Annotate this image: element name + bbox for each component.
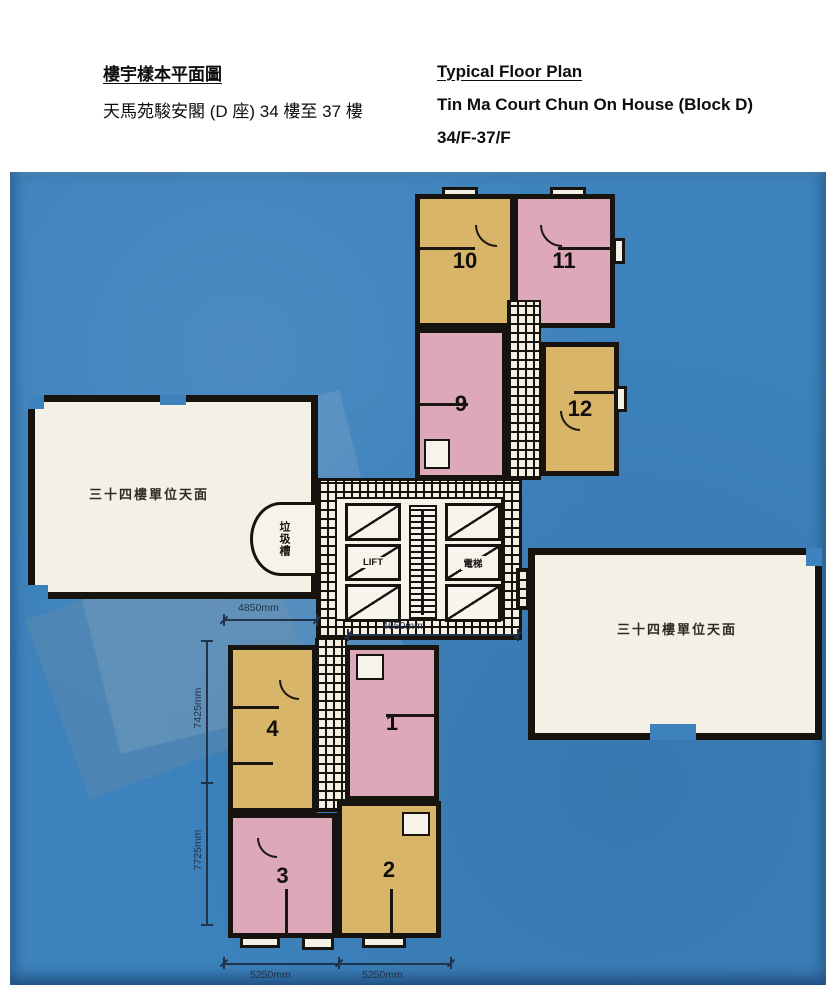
bathroom bbox=[356, 654, 384, 680]
roof-terrace-label: 三十四樓單位天面 bbox=[89, 484, 209, 503]
interior-wall bbox=[386, 714, 434, 717]
unit-10: 10 bbox=[415, 194, 515, 328]
lift-core: LIFT 電梯 bbox=[316, 478, 522, 640]
lift-shaft-dianti-label: 電梯 bbox=[445, 544, 501, 581]
refuse-chute: 垃圾槽 bbox=[250, 502, 318, 576]
dimension-line bbox=[223, 619, 317, 621]
interior-wall bbox=[574, 391, 614, 394]
unit-12: 12 bbox=[541, 342, 619, 476]
stair-rail bbox=[421, 511, 424, 615]
refuse-chute-label: 垃圾槽 bbox=[276, 521, 292, 557]
dimension-tick bbox=[201, 782, 213, 784]
unit-number: 10 bbox=[453, 248, 477, 274]
dimension-7425: 7425mm bbox=[192, 668, 204, 748]
dimension-7725: 7725mm bbox=[192, 810, 204, 890]
page-subtitle-en: Tin Ma Court Chun On House (Block D) bbox=[437, 95, 753, 115]
dimension-tick bbox=[201, 924, 213, 926]
interior-wall bbox=[420, 403, 468, 406]
interior-wall bbox=[233, 762, 273, 765]
bathroom bbox=[402, 812, 430, 836]
door-arc bbox=[540, 225, 562, 247]
interior-wall bbox=[390, 889, 393, 933]
dimension-4850: 4850mm bbox=[238, 602, 279, 614]
header-english: Typical Floor Plan Tin Ma Court Chun On … bbox=[437, 62, 753, 148]
roof-notch bbox=[650, 724, 696, 740]
lift-shaft-lift-label: LIFT bbox=[345, 544, 401, 581]
door-arc bbox=[475, 225, 497, 247]
floor-plan-page: 樓宇樣本平面圖 天馬苑駿安閣 (D 座) 34 樓至 37 樓 Typical … bbox=[0, 0, 836, 992]
lift-shaft bbox=[345, 584, 401, 622]
lift-shaft bbox=[445, 584, 501, 622]
interior-wall bbox=[285, 889, 288, 933]
unit-1: 1 bbox=[345, 645, 439, 801]
ac-platform bbox=[615, 386, 627, 412]
roof-notch bbox=[28, 585, 48, 599]
lift-shaft bbox=[345, 503, 401, 541]
dimension-5250-left: 5250mm bbox=[250, 969, 291, 981]
unit-number: 4 bbox=[266, 716, 278, 742]
balcony bbox=[362, 936, 406, 948]
unit-9: 9 bbox=[415, 328, 507, 480]
page-title-en: Typical Floor Plan bbox=[437, 62, 753, 82]
lift-label-zh: 電梯 bbox=[461, 556, 484, 570]
unit-2: 2 bbox=[337, 801, 441, 938]
interior-wall bbox=[420, 247, 475, 250]
page-floors-en: 34/F-37/F bbox=[437, 128, 753, 148]
corridor bbox=[315, 638, 347, 812]
ac-platform bbox=[613, 238, 625, 264]
roof-notch bbox=[28, 395, 44, 409]
unit-4: 4 bbox=[228, 645, 317, 813]
dimension-line bbox=[347, 634, 518, 636]
dimension-tick bbox=[201, 640, 213, 642]
unit-number: 3 bbox=[276, 863, 288, 889]
bathroom bbox=[424, 439, 450, 469]
interior-wall bbox=[558, 247, 610, 250]
lift-label: LIFT bbox=[361, 557, 385, 568]
unit-3: 3 bbox=[228, 813, 337, 938]
dimension-5250-right: 5250mm bbox=[362, 969, 403, 981]
scanned-floor-plan: 10 11 9 12 三十四樓單位天面 垃圾槽 bbox=[10, 172, 826, 985]
page-title-zh: 樓宇樣本平面圖 bbox=[103, 60, 363, 85]
roof-terrace-label: 三十四樓單位天面 bbox=[617, 619, 737, 638]
header-chinese: 樓宇樣本平面圖 天馬苑駿安閣 (D 座) 34 樓至 37 樓 bbox=[103, 60, 363, 122]
roof-terrace-right: 三十四樓單位天面 bbox=[528, 548, 822, 740]
corridor bbox=[507, 300, 541, 480]
roof-notch bbox=[160, 395, 186, 405]
balcony bbox=[302, 936, 334, 950]
door-arc bbox=[279, 680, 299, 700]
unit-number: 2 bbox=[383, 857, 395, 883]
unit-number: 11 bbox=[552, 248, 575, 274]
dimension-4650: 4650mm bbox=[382, 620, 423, 632]
page-subtitle-zh: 天馬苑駿安閣 (D 座) 34 樓至 37 樓 bbox=[103, 97, 363, 122]
interior-wall bbox=[233, 706, 279, 709]
door-arc bbox=[257, 838, 277, 858]
balcony bbox=[240, 936, 280, 948]
door-arc bbox=[560, 411, 580, 431]
lift-shaft bbox=[445, 503, 501, 541]
roof-notch bbox=[806, 548, 822, 566]
